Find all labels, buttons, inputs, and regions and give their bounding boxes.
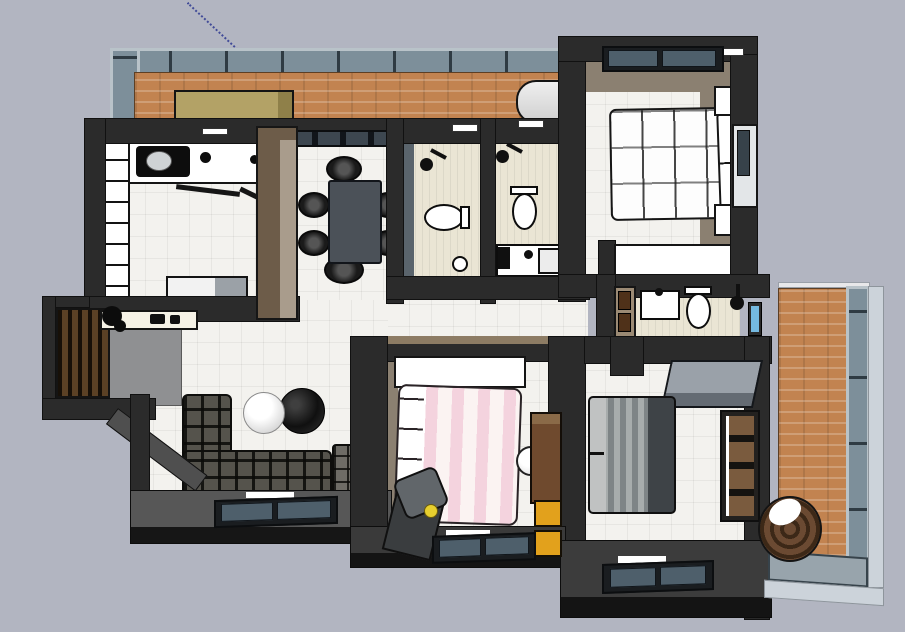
sink-basin xyxy=(146,151,172,171)
master-top-window-pane-1 xyxy=(608,50,658,67)
orange-drawer-2[interactable] xyxy=(534,530,562,557)
dining-chair-left-1[interactable] xyxy=(298,192,330,218)
wall-gray-bedroom-stub xyxy=(610,336,644,376)
ensuite-cabinet-door-2 xyxy=(618,313,631,332)
toilet-tank-left-bath xyxy=(460,206,470,229)
vanity-side-unit xyxy=(498,247,510,269)
entry-plant-leaf xyxy=(114,320,126,332)
vanity-faucet xyxy=(524,250,533,259)
gray-window-pane-2 xyxy=(660,565,706,586)
shelf-wardrobe-shelves xyxy=(726,416,754,516)
orange-drawer-1[interactable] xyxy=(534,500,562,527)
kitchen-cabinet-column[interactable] xyxy=(102,140,130,308)
ensuite-shower-arm xyxy=(736,284,740,298)
partition-face xyxy=(280,140,296,318)
right-balcony-glazing[interactable] xyxy=(846,286,870,580)
master-top-window-pane-2 xyxy=(662,50,716,67)
shower-head-right-bath[interactable] xyxy=(496,150,509,163)
living-window-pane-1 xyxy=(221,502,273,522)
pink-brown-cabinet[interactable] xyxy=(530,412,562,504)
white-round-rug[interactable] xyxy=(243,392,285,434)
ensuite-sink-faucet xyxy=(655,288,663,296)
pink-bedroom-wardrobe[interactable] xyxy=(394,356,526,388)
gray-window-pane-1 xyxy=(610,567,656,588)
gray-bed[interactable] xyxy=(588,396,676,514)
living-window-pane-2 xyxy=(277,500,331,520)
viewport-canvas[interactable] xyxy=(0,0,905,632)
dining-chair-left-2[interactable] xyxy=(298,230,330,256)
wall-master-left xyxy=(558,36,586,302)
desk-flower xyxy=(424,504,438,518)
right-balcony-frame-outer xyxy=(868,286,884,588)
bathroom-light-small xyxy=(202,128,228,135)
toilet-left-bath[interactable] xyxy=(424,204,464,231)
ensuite-toilet[interactable] xyxy=(686,293,711,329)
kitchen-faucet xyxy=(200,152,211,163)
bathroom-light-left xyxy=(452,124,478,132)
dining-high-window xyxy=(288,130,388,147)
dining-table[interactable] xyxy=(328,180,382,264)
gray-bed-pillow-seam xyxy=(590,452,604,455)
console-decor-1 xyxy=(150,314,165,324)
master-right-window-glass xyxy=(737,130,750,176)
black-round-rug[interactable] xyxy=(279,388,325,434)
ensuite-shower-head[interactable] xyxy=(730,296,744,310)
pink-window-pane-1 xyxy=(439,538,481,557)
gray-bedroom-desk[interactable] xyxy=(661,360,763,408)
ensuite-cabinet-door-1 xyxy=(618,291,631,310)
toilet-right-bath[interactable] xyxy=(512,193,537,230)
master-bed-duvet[interactable] xyxy=(609,107,723,221)
dining-chair-top[interactable] xyxy=(326,156,362,182)
bathroom-light-right xyxy=(518,120,544,128)
pink-window-pane-2 xyxy=(485,536,529,556)
floor-drain xyxy=(452,256,468,272)
ensuite-blue-window-pane xyxy=(751,306,759,332)
console-decor-2 xyxy=(170,315,180,324)
shower-head-left-bath[interactable] xyxy=(420,158,433,171)
